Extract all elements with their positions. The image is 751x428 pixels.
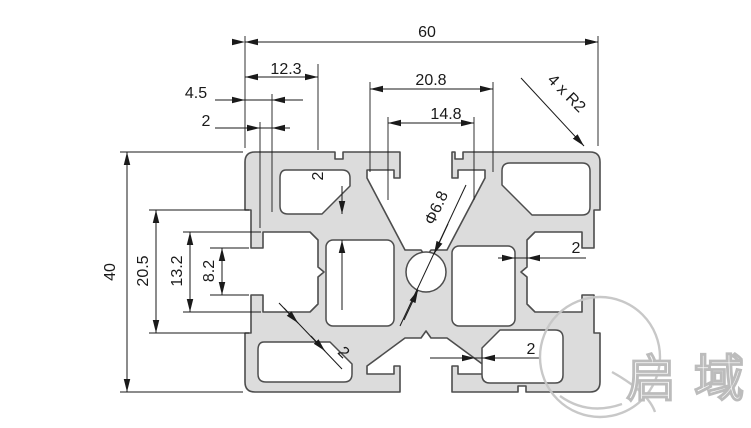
dimension-corner-radius: 4 x R2 — [521, 71, 589, 146]
brand-watermark-text: 启域 — [626, 351, 751, 407]
dim-label-total-height: 40 — [102, 263, 119, 281]
dim-label-top-left-width: 12.3 — [270, 61, 301, 78]
dim-label-left-slot-cavity: 13.2 — [169, 255, 186, 286]
dimension-left-slot-outer: 20.5 — [135, 210, 156, 333]
dim-label-bottom-right-wall: 2 — [527, 341, 536, 358]
dim-label-left-lip-depth: 4.5 — [185, 85, 207, 102]
dimension-top-slot-inner: 14.8 — [388, 106, 474, 123]
dimension-top-slot-outer: 20.8 — [370, 72, 493, 89]
dimension-total-height: 40 — [102, 152, 127, 392]
dim-label-top-slot-inner: 14.8 — [430, 106, 461, 123]
dim-label-right-wall-thickness: 2 — [572, 240, 581, 257]
technical-drawing-canvas: 60 12.3 20.8 14.8 4.5 2 40 20.5 — [0, 0, 751, 428]
dimension-left-slot-cavity: 13.2 — [169, 232, 190, 312]
dimension-left-slot-opening: 8.2 — [201, 248, 222, 295]
dimension-total-width: 60 — [245, 24, 598, 42]
dimension-top-left-width: 12.3 — [245, 61, 318, 78]
dim-label-top-slot-outer: 20.8 — [415, 72, 446, 89]
dim-label-center-hole: Φ6.8 — [422, 189, 452, 228]
dimension-left-lip-thickness: 2 — [202, 113, 290, 130]
dim-label-left-slot-outer: 20.5 — [135, 255, 152, 286]
pocket-left-middle — [326, 240, 394, 326]
center-hole — [406, 252, 446, 292]
dim-label-left-lip-thickness: 2 — [202, 113, 211, 130]
dim-label-total-width: 60 — [418, 24, 436, 41]
dim-label-top-web-thickness: 2 — [310, 171, 327, 180]
profile-cross-section — [245, 152, 600, 392]
dim-label-left-slot-opening: 8.2 — [201, 260, 218, 282]
chamber-bottom-right — [482, 330, 563, 383]
dimension-left-lip-depth: 4.5 — [185, 85, 303, 102]
